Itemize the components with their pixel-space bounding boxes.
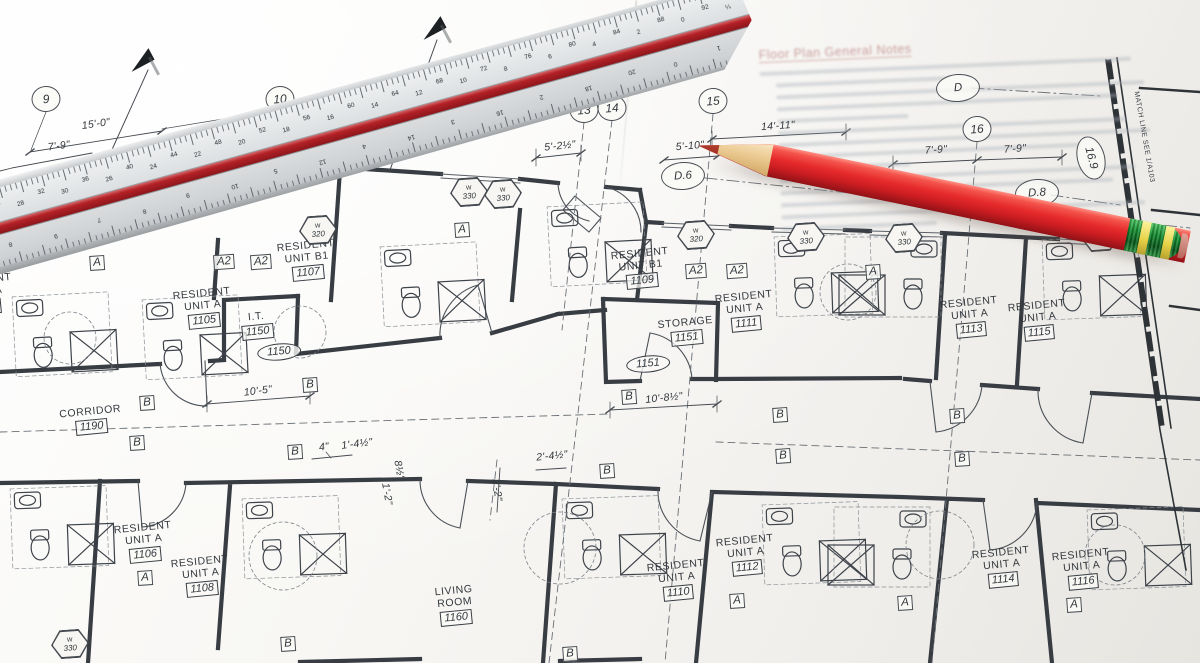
room-number: 1151 — [670, 329, 703, 347]
ruler-scale-number: 14 — [407, 133, 416, 142]
window-tag-number: 330 — [63, 644, 77, 653]
room-number: 1105 — [188, 312, 221, 330]
room-number: 1113 — [955, 321, 987, 339]
ruler-scale-number: 30 — [60, 187, 69, 196]
grid-bubble: 16.9 — [1072, 133, 1110, 183]
ruler-scale-number: 24 — [149, 163, 158, 172]
room-number: 1114 — [987, 571, 1019, 589]
letter-marker: B — [280, 636, 296, 652]
dimension-label: 7'-9" — [47, 138, 71, 153]
ruler-scale-number: 56 — [302, 114, 311, 123]
window-tag-number: 330 — [496, 194, 510, 203]
ruler-scale-number: 76 — [524, 53, 533, 62]
window-tag-number: 330 — [799, 237, 813, 246]
letter-marker: A — [454, 222, 470, 238]
ruler-scale-number: 5 — [273, 167, 278, 175]
letter-marker: A — [729, 593, 745, 609]
room-label: CORRIDOR1190 — [59, 403, 123, 438]
letter-marker: B — [949, 408, 965, 424]
ruler-scale-number: 10 — [230, 182, 239, 191]
window-tag: W330 — [50, 628, 90, 660]
ruler-scale-number: 16 — [496, 108, 505, 117]
ruler-scale-number: 26 — [105, 175, 114, 184]
room-number: 1112 — [731, 559, 763, 577]
room-number: 1116 — [1067, 573, 1099, 591]
room-number: 1103 — [0, 298, 2, 316]
ruler-scale-number: 28 — [16, 199, 25, 208]
room-name: UNIT A — [125, 532, 163, 548]
letter-marker: B — [302, 377, 318, 393]
ruler-scale-number: 92 — [701, 3, 710, 12]
room-name: STORAGE — [657, 314, 713, 331]
ruler-scale-number: 7 — [96, 216, 101, 224]
room-name: UNIT A — [1063, 559, 1101, 575]
room-number: 1106 — [129, 546, 162, 564]
grid-bubble: 16 — [962, 115, 993, 143]
ruler-scale-number: 14 — [370, 101, 379, 110]
ruler-scale-number: 1 — [716, 44, 721, 52]
letter-marker: A — [865, 264, 881, 280]
window-tag-text: W330 — [483, 178, 523, 210]
letter-marker: A — [137, 570, 153, 586]
letter-marker: A — [89, 255, 105, 271]
ruler-scale-number: 9 — [185, 191, 190, 199]
dimension-label: 2'-4½" — [536, 448, 569, 463]
room-name: UNIT A — [658, 570, 696, 586]
window-tag-text: W330 — [449, 176, 489, 208]
ruler-scale-number: 80 — [568, 40, 577, 49]
ruler-scale-number: 8 — [8, 240, 13, 248]
ruler-scale-number: 84 — [612, 28, 621, 37]
room-label: RESIDENTUNIT A1110 — [646, 557, 708, 603]
ruler-scale-number: 60 — [347, 102, 356, 111]
room-label: RESIDENTUNIT A1111 — [714, 288, 776, 334]
grid-bubble: D — [935, 72, 981, 103]
ruler-scale-number: 3 — [450, 117, 455, 125]
room-label: LIVINGROOM1160 — [434, 583, 476, 627]
letter-marker: A2 — [685, 263, 707, 279]
dimension-label: 4" — [318, 440, 330, 453]
dimension-label: 7'-9" — [924, 143, 947, 157]
ruler-scale-number: 18 — [282, 126, 291, 135]
ruler-scale-number: 16 — [326, 114, 335, 123]
letter-marker: B — [139, 395, 155, 411]
letter-marker: A2 — [726, 263, 748, 279]
ruler-scale-number: 12 — [415, 89, 424, 98]
room-name: UNIT A — [951, 307, 989, 323]
grid-bubble: 9 — [31, 85, 62, 113]
room-label: I.T.1150 — [240, 309, 274, 341]
window-tag: W320 — [676, 219, 716, 251]
window-tag: W330 — [884, 222, 924, 254]
ruler-scale-number: 20 — [627, 67, 636, 76]
ruler-scale-number: 4 — [362, 142, 367, 150]
oval-tag: 1151 — [626, 354, 671, 375]
ruler-scale-number: 72 — [479, 65, 488, 74]
ruler-scale-number: 2 — [539, 93, 544, 101]
room-name: UNIT A — [184, 298, 222, 314]
ruler-scale-number: 88 — [656, 16, 665, 25]
window-tag-text: W330 — [786, 221, 826, 253]
room-label: RESIDENTUNIT A1116 — [1051, 546, 1113, 592]
dimension-label: 15'-0" — [81, 116, 111, 132]
grid-bubble: 15 — [698, 87, 729, 115]
ruler-scale-number: 32 — [37, 188, 46, 197]
ruler-scale-number: 2 — [636, 29, 641, 37]
room-label: RESIDENTUNIT A1106 — [113, 519, 175, 565]
window-tag: W330 — [786, 221, 826, 253]
room-number: 1109 — [626, 272, 659, 290]
room-name: UNIT A — [0, 284, 3, 300]
dimension-label: 10'-8½" — [645, 390, 684, 406]
ruler-scale-number: 40 — [125, 163, 134, 172]
letter-marker: B — [772, 407, 788, 423]
room-name: UNIT A — [727, 545, 765, 561]
window-tag-number: 330 — [462, 192, 476, 201]
room-label: RESIDENTUNIT A1114 — [971, 544, 1033, 590]
ruler-scale-number: 18 — [584, 84, 593, 93]
room-label: RESIDENTUNIT A1103 — [0, 271, 15, 317]
room-label: RESIDENTUNIT A1105 — [172, 285, 234, 331]
ruler-scale-number: 6 — [547, 53, 552, 61]
room-name: UNIT A — [1019, 310, 1057, 326]
grid-bubble: D.6 — [660, 160, 706, 191]
room-name: ROOM — [437, 595, 473, 610]
window-tag-text: W330 — [50, 628, 90, 660]
room-name: CORRIDOR — [59, 403, 122, 421]
dimension-label: 8½" — [391, 459, 406, 480]
ruler-scale-number: 48 — [214, 138, 223, 147]
window-tag-number: 330 — [897, 238, 911, 247]
ruler-scale-number: 36 — [81, 175, 90, 184]
room-label: RESIDENTUNIT B11107 — [276, 237, 338, 283]
room-label: RESIDENTUNIT A1115 — [1007, 297, 1069, 343]
dimension-label: 1'-2" — [379, 482, 395, 506]
dimension-label: 10'-5" — [243, 383, 273, 398]
room-number: 1111 — [731, 315, 762, 333]
ruler-scale-number: 8 — [141, 207, 146, 215]
letter-marker: B — [599, 463, 615, 479]
room-name: UNIT A — [983, 557, 1021, 573]
match-line-label: MATCH LINE SEE 1/A103 — [1133, 91, 1156, 183]
letter-marker: A — [1066, 597, 1082, 613]
ruler-scale-number: 34 — [0, 200, 1, 209]
letter-marker: A2 — [250, 254, 272, 270]
ruler-scale-number: 68 — [435, 77, 444, 86]
letter-marker: B — [954, 451, 970, 467]
ruler-scale-number: 0 — [680, 16, 685, 24]
window-tag: W330 — [449, 176, 489, 208]
dimension-label: 2'-2" — [489, 478, 504, 502]
ruler-scale-number: 4 — [592, 41, 597, 49]
window-tag: W330 — [483, 178, 523, 210]
window-tag-text: W320 — [676, 219, 716, 251]
blueprint-photo: Floor Plan General Notes 91013141516DD.6… — [0, 0, 1200, 663]
room-number: 1160 — [440, 609, 473, 627]
room-label: RESIDENTUNIT A1108 — [170, 553, 232, 599]
ruler-scale-number: 44 — [170, 151, 179, 160]
ruler-scale-number: 52 — [258, 126, 267, 135]
letter-marker: B — [287, 444, 303, 460]
letter-marker: B — [621, 389, 637, 405]
ruler-scale-number: 9 — [53, 232, 58, 240]
room-label: RESIDENTUNIT B11109 — [610, 245, 672, 291]
letter-marker: B — [775, 448, 791, 464]
dimension-label: 5'-2½" — [544, 138, 577, 153]
room-name: UNIT A — [726, 301, 764, 317]
room-name: UNIT A — [182, 566, 220, 582]
room-label: RESIDENTUNIT A1113 — [939, 294, 1001, 340]
ruler-scale-number: 64 — [391, 89, 400, 98]
room-label: STORAGE1151 — [657, 314, 715, 348]
room-label: RESIDENTUNIT A1112 — [715, 532, 777, 578]
room-number: 1190 — [75, 418, 108, 436]
letter-marker: A2 — [213, 254, 235, 270]
ruler-scale-number: 0 — [673, 60, 678, 68]
room-name: I.T. — [247, 310, 264, 324]
dimension-label: 14'-11" — [761, 119, 796, 133]
ruler-scale-number: 10 — [459, 77, 468, 86]
window-tag-number: 320 — [689, 235, 703, 244]
room-number: 1108 — [186, 580, 219, 598]
dimension-label: 7'-9" — [1003, 142, 1026, 156]
ruler-scale-number: 8 — [503, 65, 508, 73]
oval-tag: 1150 — [257, 342, 302, 363]
ruler-scale-number: 20 — [238, 138, 247, 147]
room-number: 1107 — [292, 264, 325, 282]
room-number: 1150 — [241, 323, 274, 341]
dimension-label: 1'-4½" — [341, 436, 374, 452]
window-tag-text: W330 — [884, 222, 924, 254]
letter-marker: B — [129, 435, 145, 451]
ruler-scale-number: 12 — [318, 157, 327, 166]
ruler-scale-number: ¼ — [724, 4, 731, 12]
letter-marker: A — [897, 595, 913, 611]
room-number: 1115 — [1023, 324, 1055, 342]
letter-marker: B — [562, 646, 578, 662]
ruler-scale-number: 22 — [193, 150, 202, 159]
window-tag-number: 320 — [311, 230, 325, 239]
room-number: 1110 — [662, 584, 694, 602]
